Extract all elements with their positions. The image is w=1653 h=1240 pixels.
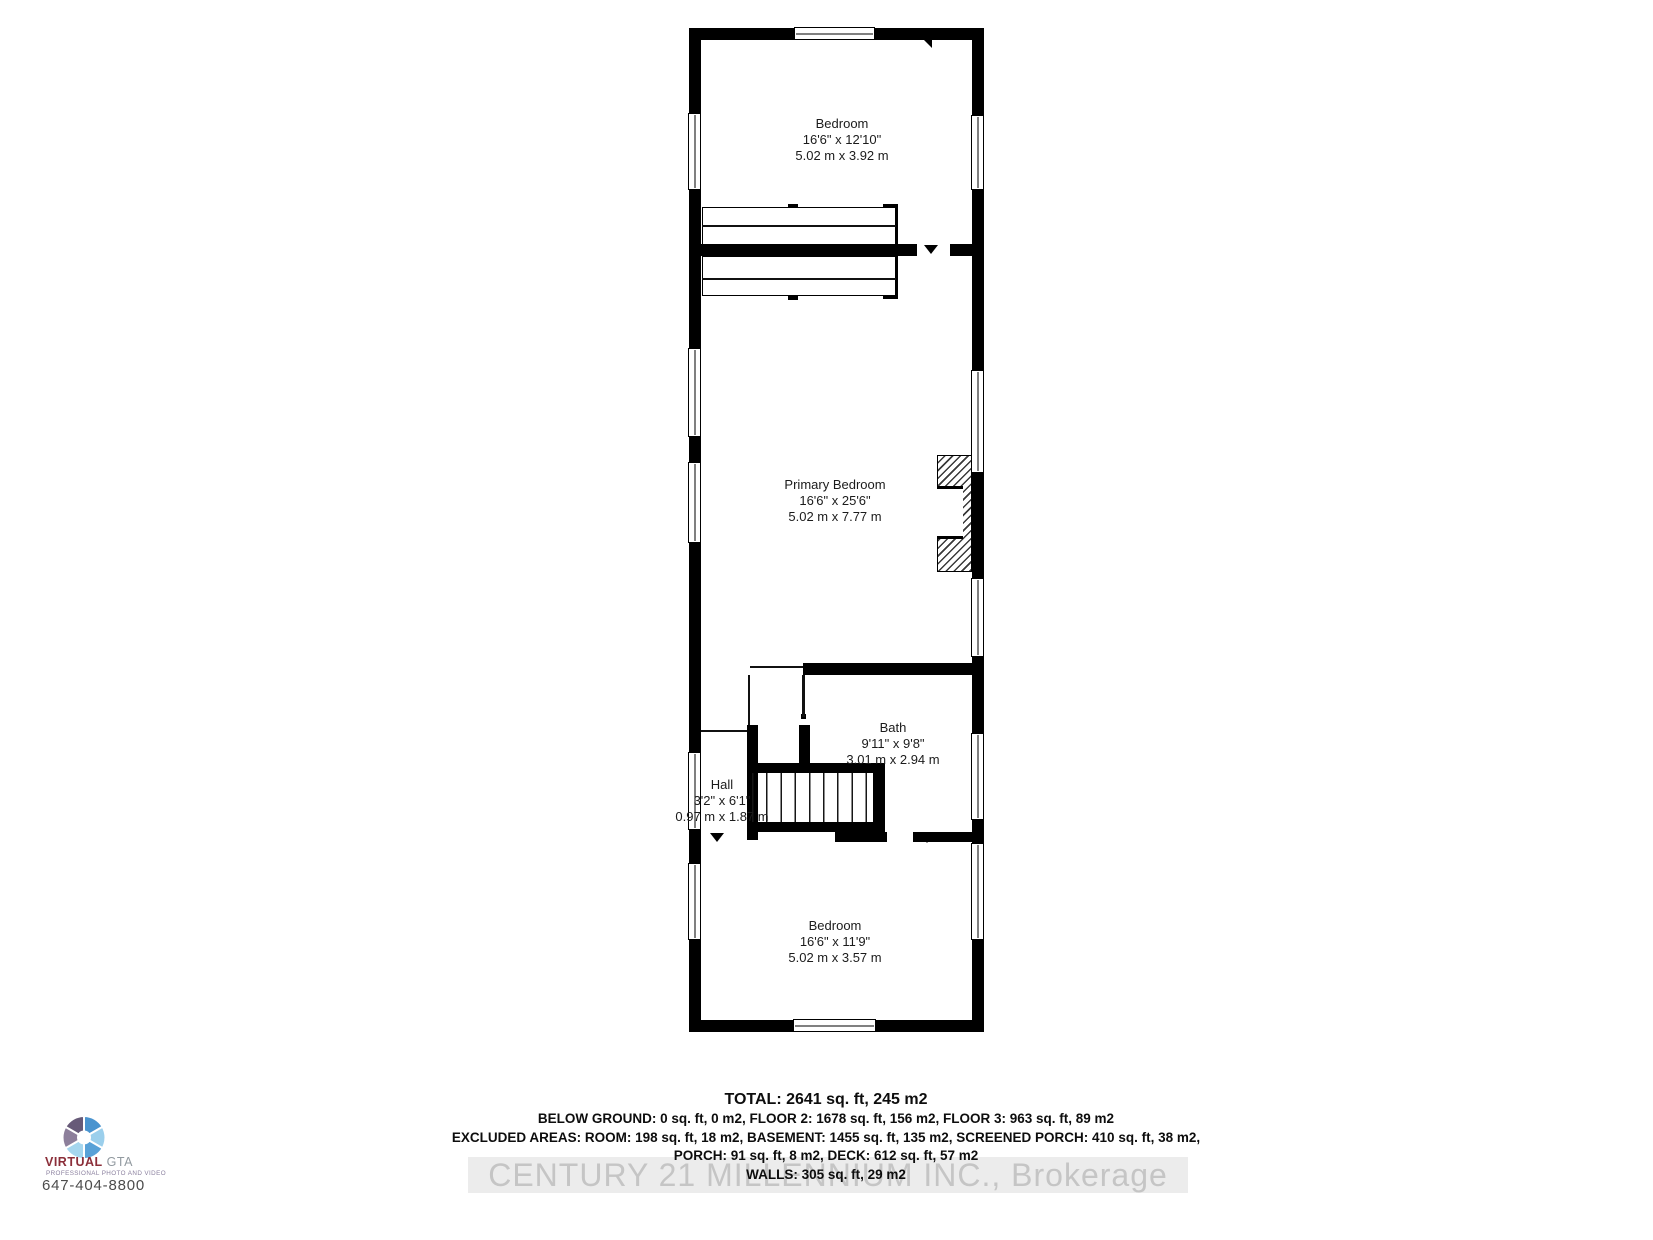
summary-floors: BELOW GROUND: 0 sq. ft, 0 m2, FLOOR 2: 1… bbox=[452, 1110, 1200, 1129]
closet-rod-lower bbox=[702, 278, 896, 280]
window bbox=[793, 1019, 876, 1032]
summary-excluded-2: PORCH: 91 sq. ft, 8 m2, DECK: 612 sq. ft… bbox=[452, 1147, 1200, 1166]
stairs bbox=[752, 773, 880, 822]
room-label-hall: Hall 3'2" x 6'1" 0.97 m x 1.87 m bbox=[675, 777, 768, 825]
logo-brand-secondary: GTA bbox=[103, 1155, 133, 1169]
room-name: Primary Bedroom bbox=[784, 477, 885, 493]
wall-bedroom-divider-stub bbox=[950, 244, 984, 256]
wall-stair-bottom bbox=[750, 822, 880, 832]
hall-top-line bbox=[701, 730, 747, 732]
door-swing-marker bbox=[920, 834, 934, 843]
bath-door-leaf bbox=[802, 675, 805, 717]
room-label-bath: Bath 9'11" x 9'8" 3.01 m x 2.94 m bbox=[846, 720, 939, 768]
closet-rod-upper bbox=[702, 225, 896, 227]
window bbox=[688, 113, 701, 190]
room-label-primary-bedroom: Primary Bedroom 16'6" x 25'6" 5.02 m x 7… bbox=[784, 477, 885, 525]
summary-total: TOTAL: 2641 sq. ft, 245 m2 bbox=[452, 1089, 1200, 1110]
window bbox=[971, 843, 984, 940]
door-swing-marker bbox=[924, 245, 938, 254]
wall-bath-post bbox=[799, 725, 810, 767]
room-dims-imperial: 16'6" x 12'10" bbox=[795, 132, 888, 148]
logo-brand: VIRTUAL GTA bbox=[45, 1155, 133, 1169]
room-name: Hall bbox=[675, 777, 768, 793]
wall-bath-bottom-left bbox=[835, 832, 887, 842]
window bbox=[688, 348, 701, 437]
room-dims-imperial: 16'6" x 11'9" bbox=[788, 934, 881, 950]
room-name: Bedroom bbox=[795, 116, 888, 132]
room-label-bedroom-bottom: Bedroom 16'6" x 11'9" 5.02 m x 3.57 m bbox=[788, 918, 881, 966]
window bbox=[688, 863, 701, 940]
window bbox=[971, 370, 984, 473]
room-dims-imperial: 3'2" x 6'1" bbox=[675, 793, 768, 809]
logo-tagline: PROFESSIONAL PHOTO AND VIDEO bbox=[46, 1170, 166, 1177]
closet-lower bbox=[702, 256, 896, 296]
summary-excluded-1: EXCLUDED AREAS: ROOM: 198 sq. ft, 18 m2,… bbox=[452, 1129, 1200, 1148]
room-name: Bedroom bbox=[788, 918, 881, 934]
wall-bath-top bbox=[803, 663, 984, 675]
room-name: Bath bbox=[846, 720, 939, 736]
window bbox=[794, 27, 875, 40]
fireplace-firebox bbox=[937, 486, 963, 539]
door-swing-marker bbox=[924, 40, 932, 48]
bath-half-wall-line bbox=[750, 666, 803, 668]
window bbox=[971, 578, 984, 657]
room-dims-metric: 0.97 m x 1.87 m bbox=[675, 809, 768, 825]
window bbox=[971, 733, 984, 820]
room-dims-metric: 3.01 m x 2.94 m bbox=[846, 752, 939, 768]
logo-phone: 647-404-8800 bbox=[42, 1177, 145, 1194]
summary-walls: WALLS: 305 sq. ft, 29 m2 bbox=[452, 1166, 1200, 1185]
room-label-bedroom-top: Bedroom 16'6" x 12'10" 5.02 m x 3.92 m bbox=[795, 116, 888, 164]
hall-bath-partition bbox=[748, 675, 750, 725]
door-swing-marker bbox=[710, 833, 724, 842]
room-dims-metric: 5.02 m x 3.57 m bbox=[788, 950, 881, 966]
room-dims-imperial: 9'11" x 9'8" bbox=[846, 736, 939, 752]
room-dims-metric: 5.02 m x 7.77 m bbox=[784, 509, 885, 525]
room-dims-imperial: 16'6" x 25'6" bbox=[784, 493, 885, 509]
logo-brand-primary: VIRTUAL bbox=[45, 1155, 103, 1169]
virtual-gta-logo: VIRTUAL GTA PROFESSIONAL PHOTO AND VIDEO… bbox=[40, 1110, 240, 1210]
area-summary: TOTAL: 2641 sq. ft, 245 m2 BELOW GROUND:… bbox=[452, 1089, 1200, 1184]
room-dims-metric: 5.02 m x 3.92 m bbox=[795, 148, 888, 164]
floorplan-page: Bedroom 16'6" x 12'10" 5.02 m x 3.92 m P… bbox=[0, 0, 1653, 1240]
window bbox=[688, 462, 701, 543]
window bbox=[971, 115, 984, 190]
